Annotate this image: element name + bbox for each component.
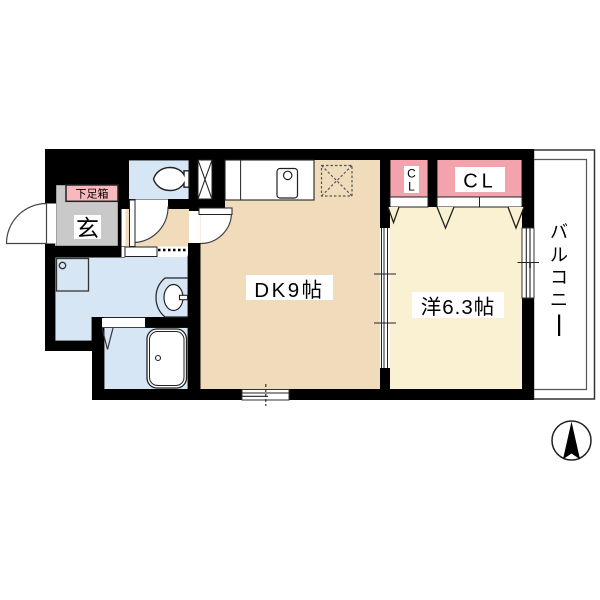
svg-text:L: L — [408, 180, 415, 194]
svg-text:玄: 玄 — [76, 215, 99, 241]
svg-text:ル: ル — [550, 245, 568, 265]
svg-text:コ: コ — [550, 268, 568, 288]
svg-text:ニ: ニ — [550, 290, 568, 310]
svg-text:洋6.3帖: 洋6.3帖 — [421, 296, 496, 319]
svg-text:DK9帖: DK9帖 — [254, 279, 324, 302]
svg-text:C: C — [407, 167, 416, 181]
svg-text:下足箱: 下足箱 — [76, 187, 109, 201]
svg-text:バ: バ — [550, 222, 568, 242]
svg-text:CL: CL — [463, 171, 497, 193]
